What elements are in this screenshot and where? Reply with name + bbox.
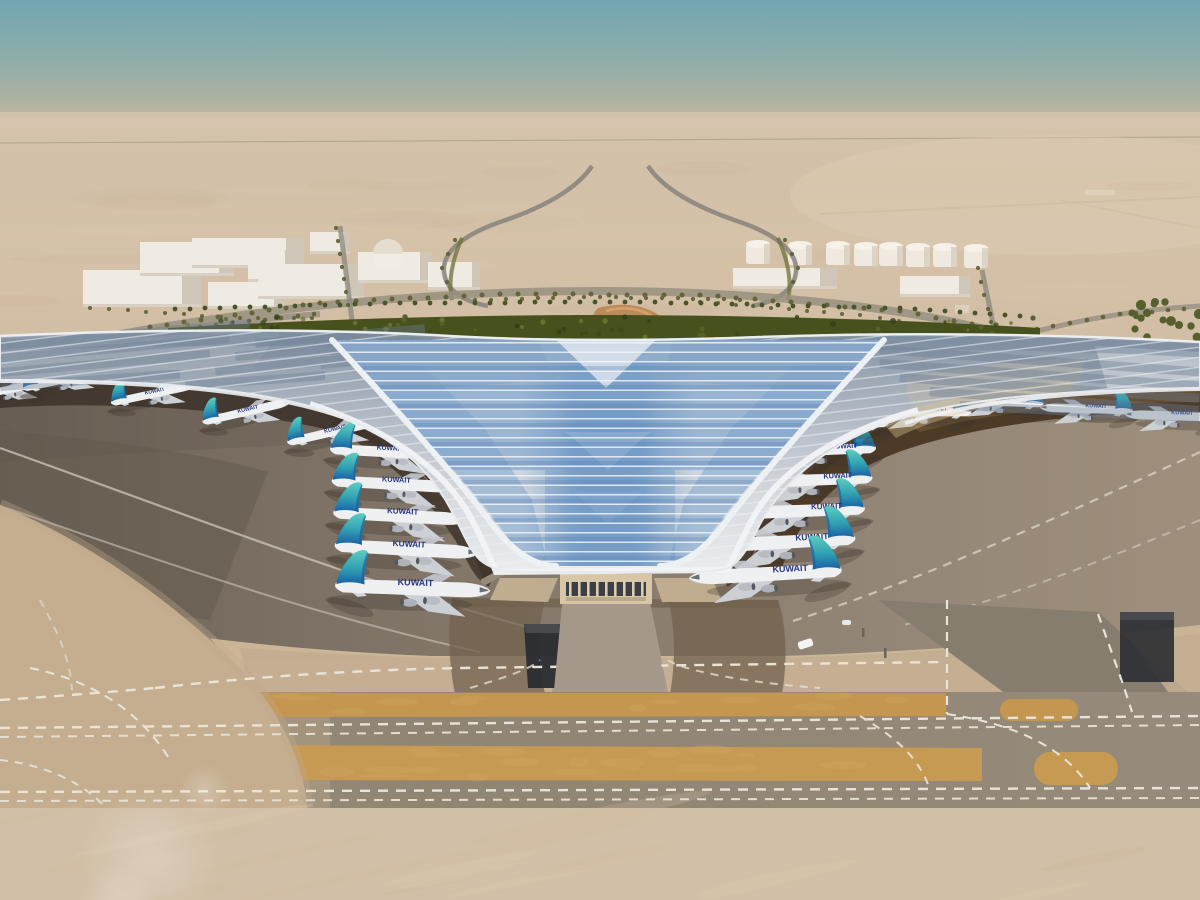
svg-text:KUWAIT: KUWAIT (387, 506, 419, 517)
svg-text:KUWAIT: KUWAIT (772, 563, 808, 575)
svg-text:KUWAIT: KUWAIT (392, 538, 426, 550)
svg-text:KUWAIT: KUWAIT (382, 474, 412, 485)
svg-text:KUWAIT: KUWAIT (397, 577, 434, 588)
